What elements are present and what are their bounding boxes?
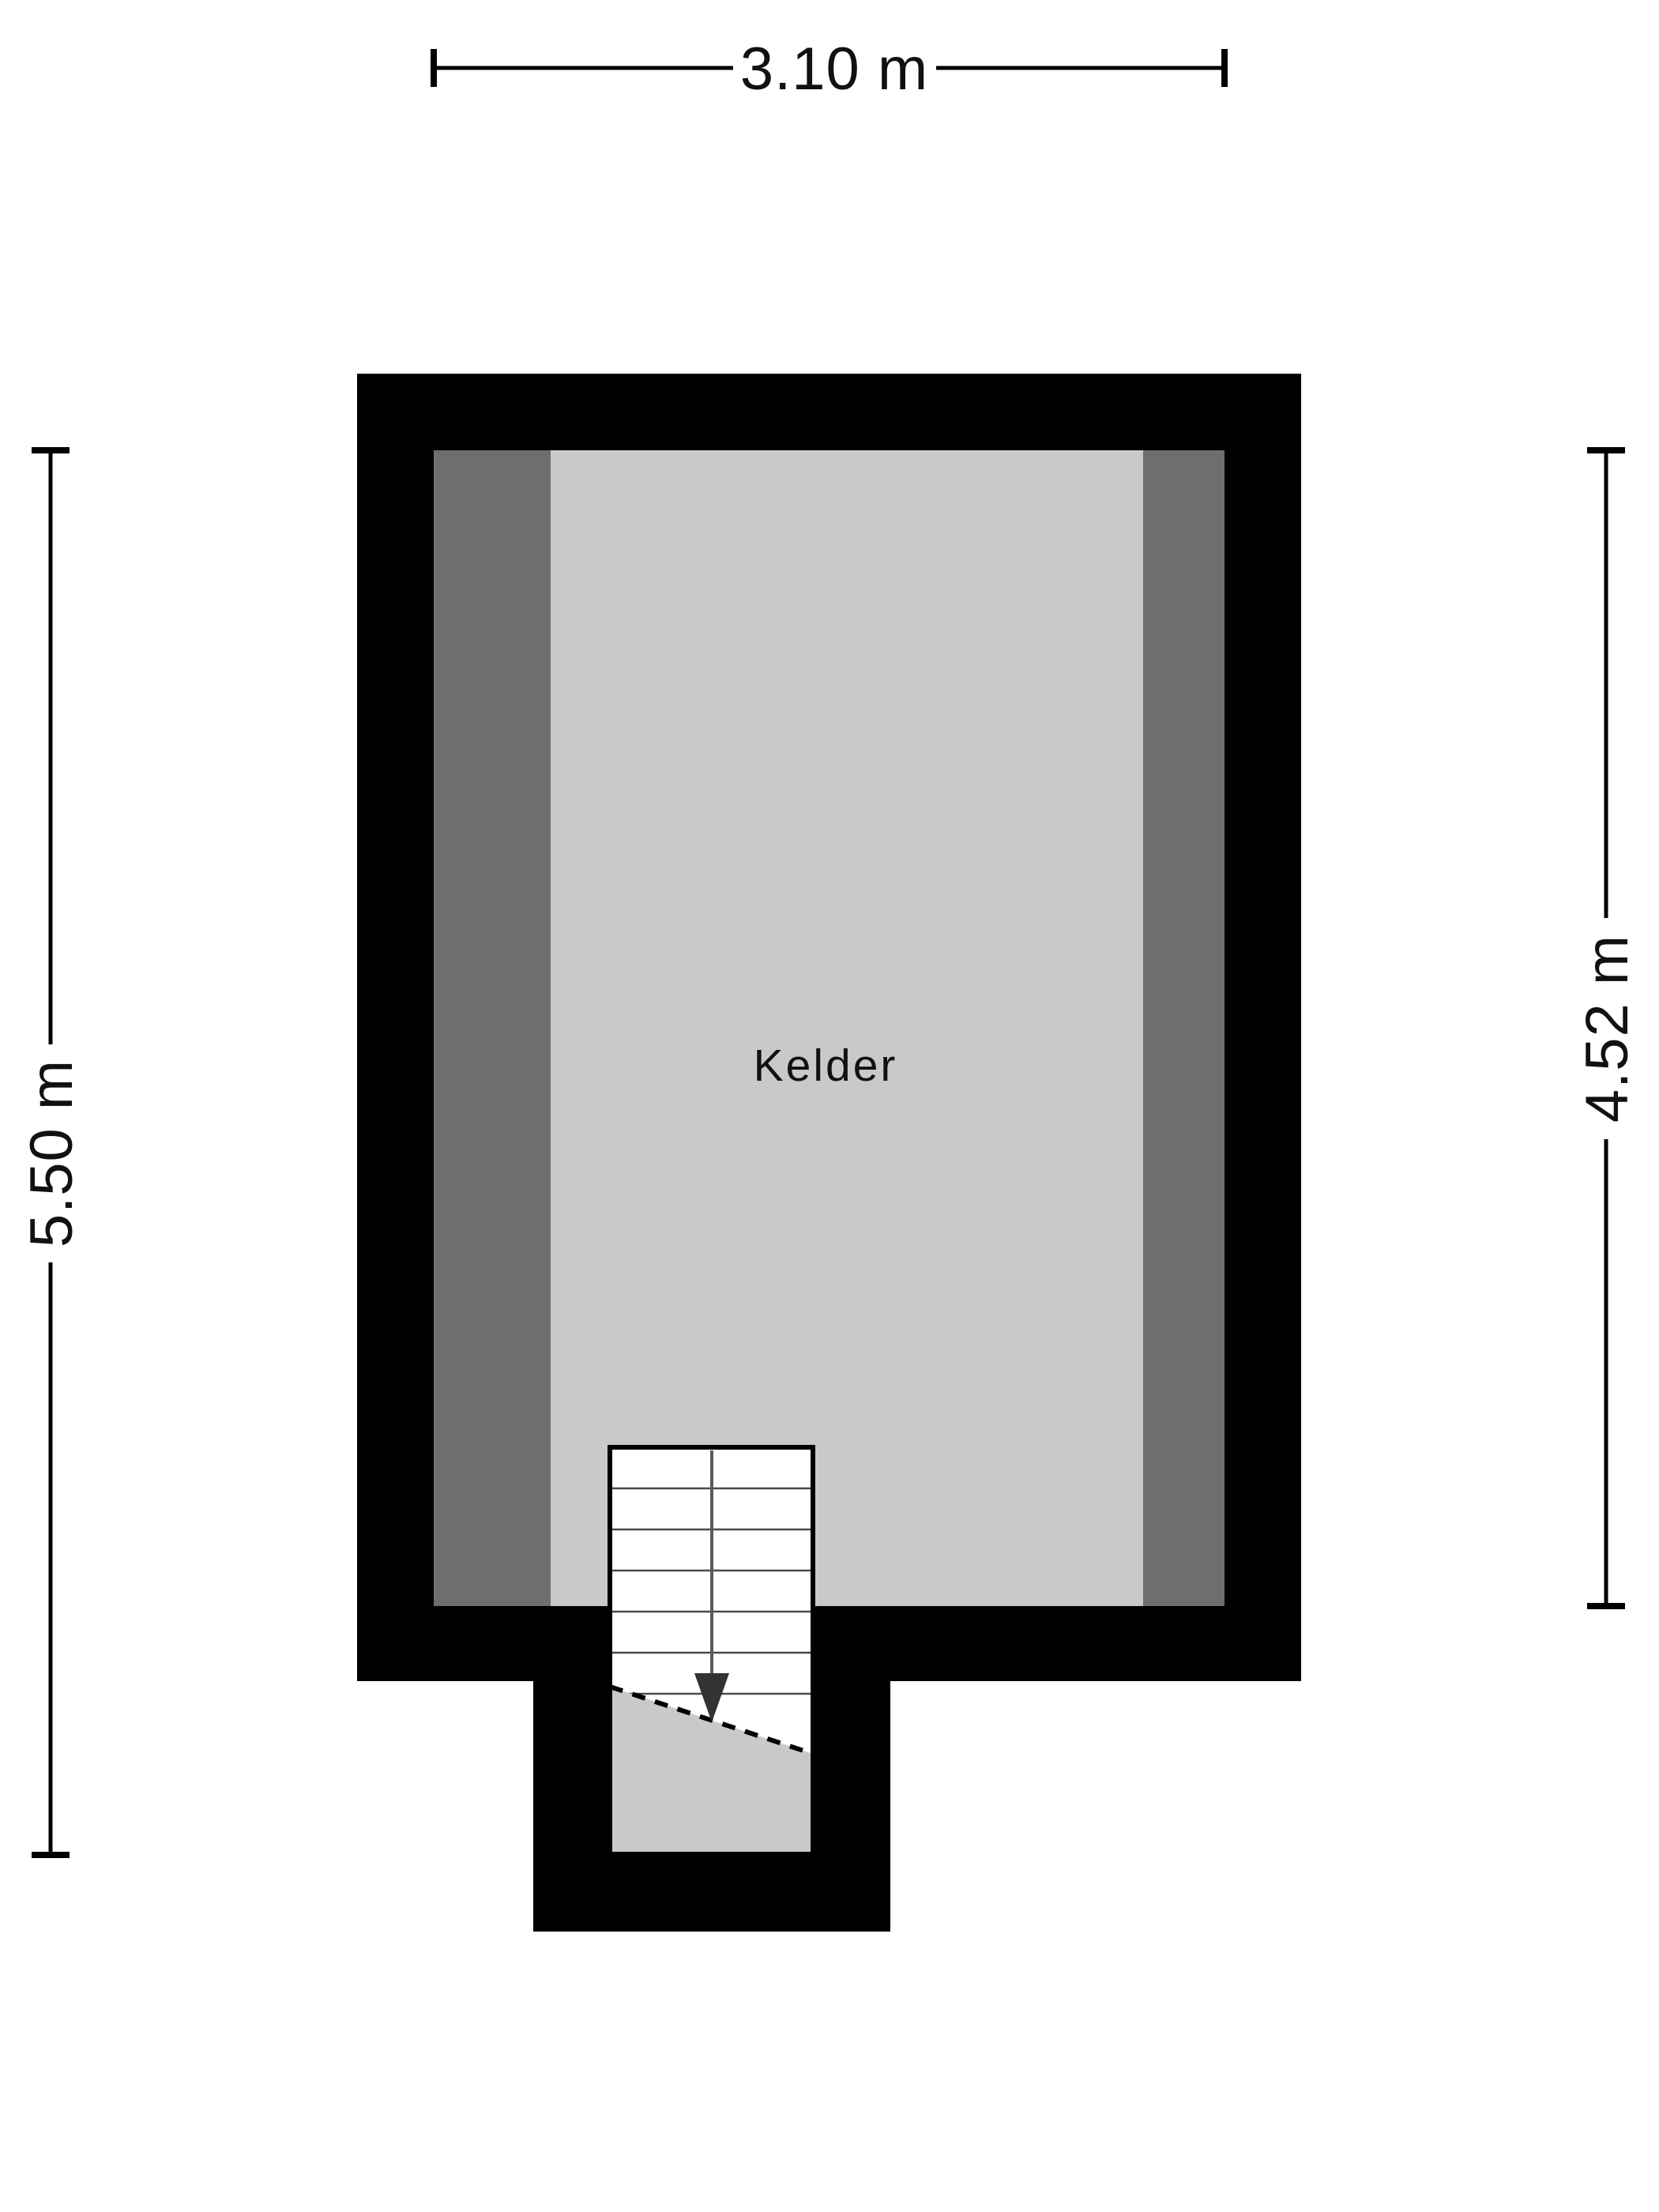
dimension-left-label: 5.50 m [18,1059,85,1247]
room-label: Kelder [754,1040,898,1091]
floor-plan-drawing: Kelder [0,0,1659,2212]
inner-wall-strip-right [1143,450,1224,1606]
inner-wall-strip-left [434,450,551,1606]
dimension-top-label: 3.10 m [740,36,928,103]
staircase [610,1447,813,1854]
dimension-right-label: 4.52 m [1574,935,1641,1123]
floor-plan-page: Kelder [0,0,1659,2212]
room-floor [434,450,1224,1606]
